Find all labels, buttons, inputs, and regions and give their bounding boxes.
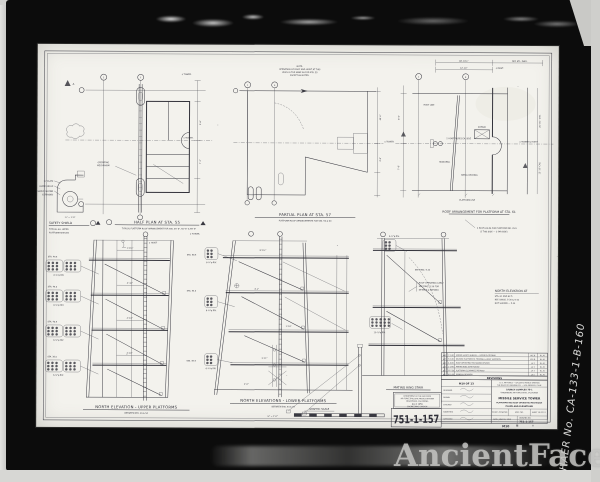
- elevation-right-subtitle: NOT SHOWN — 5-34: [495, 303, 516, 305]
- base-title: VANDENBERG AIR FORCE BASE, CALIFORNIA: [501, 391, 539, 394]
- reference-note: SEE DWG. 5-33: [415, 270, 431, 272]
- revision-cloud: [67, 124, 85, 139]
- detail-scale: ¾" = 1'-0": [65, 216, 76, 219]
- detail-note: ⅜" PLATE: [44, 180, 54, 183]
- mating-ring-stair-title: MATING RING STAIR: [393, 385, 423, 389]
- rivet-note: 6-¾"φ RIV.: [389, 235, 400, 238]
- plan-note: MECHANISM: [97, 164, 110, 167]
- rivet-note: 6-¾"φ RIV.: [206, 309, 217, 312]
- rev-desc: MATING RING STAIR ADDED: [456, 365, 480, 368]
- plan-note: PLATFORM LINE: [459, 199, 475, 202]
- dimension-label: 12'-10": [460, 68, 467, 70]
- station-label: STA. 49.5: [48, 255, 58, 258]
- dwg-no-label: DRAWING NO.: [519, 416, 531, 419]
- detail-note: GUIDE ANGLE: [39, 185, 54, 188]
- partial-plan-title: PARTIAL PLAN AT STA. 57: [279, 212, 332, 217]
- hoist-note: ¢ HOIST: [149, 241, 158, 244]
- complex-title: LAUNCH COMPLEX 75-1: [506, 389, 533, 391]
- dimension-label: 8'-0": [399, 115, 401, 120]
- photo-edge-right: [591, 0, 600, 482]
- half-plan-drawing: 2 7 9'-6" 7'-2" ¢ TOWER. ¢ TOWER. A OPER…: [64, 72, 214, 230]
- plan-note: 2 HOIST ROPES EA. SIDE: [446, 137, 471, 140]
- rev-desc: PLATFORM CLEARANCES REVISED: [456, 369, 485, 372]
- dimension-label: 2'-0": [244, 384, 249, 386]
- north-elevation-upper: 6-⅞"φ RIV. 6-⅞"φ RIV. 6-⅞"φ RIV. 6-⅞"φ R…: [45, 232, 190, 416]
- roof-arrangement-drawing: 48'-10½" REF. STL. DWG. 12'-10" ¢ MAST. …: [395, 58, 554, 233]
- plan-note: OPERATION OF ROOF AND HOIST AT THIS: [279, 68, 321, 71]
- elevation-upper-title: NORTH ELEVATION - UPPER PLATFORMS: [95, 404, 177, 409]
- plan-note: MONORAIL: [439, 161, 451, 164]
- titleblock-row-label: CHECKED: [443, 404, 452, 406]
- rev-by: J.A.T.: [530, 366, 536, 369]
- roof-plan-title: ROOF ARRANGEMENT FOR PLATFORM AT STA. 61: [442, 210, 516, 214]
- rivet-note: 6-¾"φ RIV.: [206, 367, 217, 370]
- centerline-label: ¢ TOWER.: [384, 140, 394, 143]
- partial-plan-subtitle: PLATFORM ROOF ARRANGEMENTS FOR STA. 59 &…: [279, 219, 332, 222]
- dimension-label: 1'-4¾": [127, 247, 134, 250]
- elevation-right-subtitle: REF. DWGS. 5-30 & 5-32: [495, 299, 520, 301]
- revision-mark-label: A: [73, 82, 75, 86]
- revision-triangle-icon: [200, 221, 205, 225]
- station-label: STA. 36.0: [47, 355, 57, 358]
- north-elevation-right: 6-¾"φ RIV. 10-⅞"φ RIV. SEE DWG. 5-33 ROO…: [286, 232, 539, 416]
- dimension-label: 7'-2": [200, 159, 202, 164]
- air-force-stamp: DEPARTMENT OF THE AIR FORCE AIR FORCE BA…: [393, 392, 441, 408]
- date-cell: DATE: JUNE 30, 1959: [493, 418, 511, 421]
- sheet-cell: SHEET 10 OF 13: [532, 412, 546, 414]
- dimension-label: 3'-11": [261, 358, 267, 360]
- centerline-label: ¢ TOWER.: [182, 73, 192, 76]
- titleblock-row-label: DESIGNED: [443, 390, 453, 392]
- rev-no: ▲3: [443, 365, 445, 368]
- revision-triangle-icon: [96, 221, 101, 225]
- station-label: STA. 49.5: [186, 360, 196, 363]
- cable-note: ROOF OPERATING CABLE: [419, 282, 445, 285]
- dimension-label: 7'-6": [398, 165, 400, 170]
- dimension-label: 9'-6": [200, 120, 202, 125]
- elevation-lower-title: NORTH ELEVATIONS - LOWER PLATFORMS: [240, 398, 326, 403]
- rivet-note: 6-⅞"φ RIV.: [54, 275, 65, 277]
- half-plan-subtitle: TYPICAL PLATFORM ROOF ARRANGEMENT FOR ST…: [122, 227, 196, 230]
- rev-by: J.A.T.: [530, 369, 536, 372]
- rev-no: ▲4: [443, 361, 445, 364]
- graphic-scale-unit: ⅛" = 1'-0": [267, 416, 278, 418]
- rev-app: R.L.M.: [540, 367, 546, 369]
- sheet-title: PLATFORMS AND ROOF OPERATING MECHANISM: [496, 402, 542, 404]
- dimension-label: 4'-10": [127, 318, 133, 320]
- dimension-label: 40'-0": [380, 114, 382, 120]
- grid-bubble-label: 2: [103, 77, 105, 79]
- rev-app: R.L.M.: [540, 363, 546, 365]
- dimension-label: 4'-10": [126, 353, 132, 355]
- safety-shield-subtitle: PLATFORM SHIELDS: [49, 231, 70, 234]
- dimension-label: 1'-10": [286, 326, 292, 328]
- stamp-line: ENGINEERING DIVISION: [407, 406, 428, 408]
- revision-triangle-icon: [65, 80, 71, 86]
- drawing-number-large: 751-1-157: [393, 413, 439, 427]
- graphic-scale-title: GRAPHIC SCALE: [309, 407, 329, 411]
- detail-note: SHIELD SHOWN: [37, 191, 53, 193]
- rev-app: R.L.M.: [540, 355, 546, 357]
- centerline-label: ¢ MAST.: [496, 67, 504, 70]
- rev-by: W.E.B.: [530, 359, 536, 361]
- project-title: MISSILE SERVICE TOWER: [498, 396, 541, 400]
- plan-note: EXCEPT AS NOTED.: [290, 74, 310, 77]
- grid-bubble-label: 9: [274, 85, 276, 87]
- elevation-right-title: NORTH ELEVATION AT: [495, 289, 528, 293]
- sheet-title: PLANS AND ELEVATIONS: [506, 406, 534, 408]
- rev-app: R.L.M.: [540, 359, 546, 361]
- plan-note: LEVEL IS THE SAME AS FOR STA. 55: [282, 71, 318, 74]
- station-label: STA. 40.5: [48, 320, 58, 323]
- sheet-of-label: M10 OF 13: [459, 382, 474, 386]
- dimension-label: 20'-3½" CRS.: [537, 114, 541, 128]
- dimension-label: 4'-6": [380, 157, 382, 162]
- rev-date: 2-1-60: [448, 366, 454, 368]
- stamp-line: INGLEWOOD, CALIFORNIA: [406, 400, 429, 403]
- sheet-code: M10: [502, 424, 509, 428]
- revisions-header: REVISIONS: [487, 376, 502, 380]
- station-label: STA. 58.5: [187, 254, 197, 257]
- detail-note: EXTENDED: [42, 194, 53, 196]
- centerline-label: ¢ TOWER.: [190, 233, 200, 236]
- revision-table: ▲67-1-60ADDED SAFETY SHIELDS — UPPER PLA…: [441, 353, 547, 381]
- plan-note: NOTE:: [297, 66, 304, 68]
- titleblock-row-label: APPROVED: [443, 418, 453, 421]
- grid-bubble-label: 1: [418, 77, 420, 79]
- plan-note: OPERATING: [98, 161, 110, 164]
- paper-stain: [476, 87, 536, 121]
- rivet-note: 10-⅞"φ RIV.: [374, 332, 386, 334]
- rivet-note: 6-⅞"φ RIV.: [53, 375, 64, 377]
- rev-desc: ROOF OPERATING MECHANISM REVISED: [456, 361, 490, 364]
- safety-shield-subtitle: TYPICAL ALL UPPER: [49, 228, 69, 231]
- cable-note: SEE DWG. 5-30 FOR: [419, 286, 440, 288]
- centerline-label: ¢ TOWER & HOIST: [519, 140, 538, 143]
- plan-note: (2 THIS SIDE — 2 FAR SIDE): [480, 230, 508, 233]
- rivet-note: 6-⅞"φ RIV.: [53, 340, 64, 342]
- signature-scribbles: [460, 388, 473, 420]
- dimension-label: 8'-4½": [260, 248, 267, 252]
- rev-no: ▲6: [443, 354, 445, 357]
- rev-no: ▲5: [443, 358, 445, 361]
- dimension-label: 4'-1": [254, 289, 259, 291]
- elevation-right-subtitle: STA. 61 AND 62.5: [495, 295, 513, 298]
- rev-date: 6-2-60: [448, 359, 454, 361]
- rev-by: J.A.T.: [530, 362, 536, 365]
- rivet-note: 6-⅞"φ RIV.: [53, 305, 64, 307]
- grid-bubble-label: 7: [140, 77, 142, 79]
- dwg-no-value: 751-1-157: [519, 420, 534, 424]
- titleblock-row-label: SUBMITTED: [443, 411, 454, 413]
- rev-date: 12-7-59: [448, 370, 455, 372]
- engineer-line: THE RALPH M. PARSONS CO. — LOS ANGELES, …: [497, 384, 542, 387]
- north-elevation-lower: 6-¾"φ RIV. 6-¾"φ RIV. 6-¾"φ RIV. STA. 58…: [186, 231, 353, 409]
- scale-cell: SCALE: AS NOTED: [492, 411, 508, 414]
- drawing-number-box: 751-1-157: [391, 408, 441, 427]
- rev-desc: ADDED SAFETY SHIELDS — UPPER PLATFORMS: [456, 354, 496, 357]
- plan-note: ROOF LINE: [424, 105, 436, 107]
- grid-bubble-label: 8: [465, 77, 467, 79]
- half-plan-title: HALF PLAN AT STA. 55: [134, 219, 181, 224]
- dimension-label: 48'-10½": [459, 59, 468, 63]
- dimension-label: 13'-10" CRS.: [539, 161, 541, 174]
- dimension-label: 4'-10": [127, 283, 133, 285]
- grid-bubble-label: 1: [247, 85, 249, 87]
- dimension-label: REF. STL. DWG.: [512, 61, 528, 63]
- rev-date: 7-1-60: [448, 355, 454, 357]
- film-scratches: [101, 7, 576, 33]
- safety-shield-title: SAFETY SHIELD: [49, 221, 73, 225]
- plan-note: 4 BOLT HOLES FOR PLATFORM NO. 29.5: [477, 227, 517, 230]
- rev-no: ▲2: [443, 369, 445, 372]
- drawing-sheet: 2 7 9'-6" 7'-2" ¢ TOWER. ¢ TOWER. A OPER…: [36, 44, 559, 429]
- rivet-note: 6-¾"φ RIV.: [206, 261, 217, 264]
- rev-by: W.E.B.: [530, 355, 536, 357]
- partial-plan-drawing: NOTE: OPERATION OF ROOF AND HOIST AT THI…: [233, 66, 395, 223]
- rev-date: 4-8-60: [448, 362, 454, 364]
- spec-cell: SPEC. NO.: [515, 412, 524, 414]
- plan-note: METAL DECKING: [461, 174, 478, 177]
- station-label: STA. 54.0: [187, 290, 197, 293]
- centerline-label: ¢ TOWER.: [183, 137, 193, 140]
- ancientfaces-watermark: AncientFaces: [394, 438, 600, 474]
- plan-note: SHEAVE: [478, 126, 487, 129]
- station-label: STA. 45.0: [48, 285, 58, 288]
- titleblock-row-label: DRAWN: [443, 396, 450, 399]
- title-block: M10 OF 13 DESIGNED DRAWN CHECKED SUBMITT…: [441, 380, 547, 429]
- cable-note: DETAILS & REEVING: [419, 289, 439, 292]
- drawing-linework: 2 7 9'-6" 7'-2" ¢ TOWER. ¢ TOWER. A OPER…: [36, 44, 559, 429]
- photo-scan: 2 7 9'-6" 7'-2" ¢ TOWER. ¢ TOWER. A OPER…: [0, 0, 600, 482]
- rev-app: R.L.M.: [540, 370, 546, 372]
- elevation-upper-subtitle: BETWEEN STA. 29 & 54: [125, 412, 149, 415]
- rev-desc: REVISED PLATFORM 61 FRAMING & HOIST SUPP…: [456, 358, 501, 361]
